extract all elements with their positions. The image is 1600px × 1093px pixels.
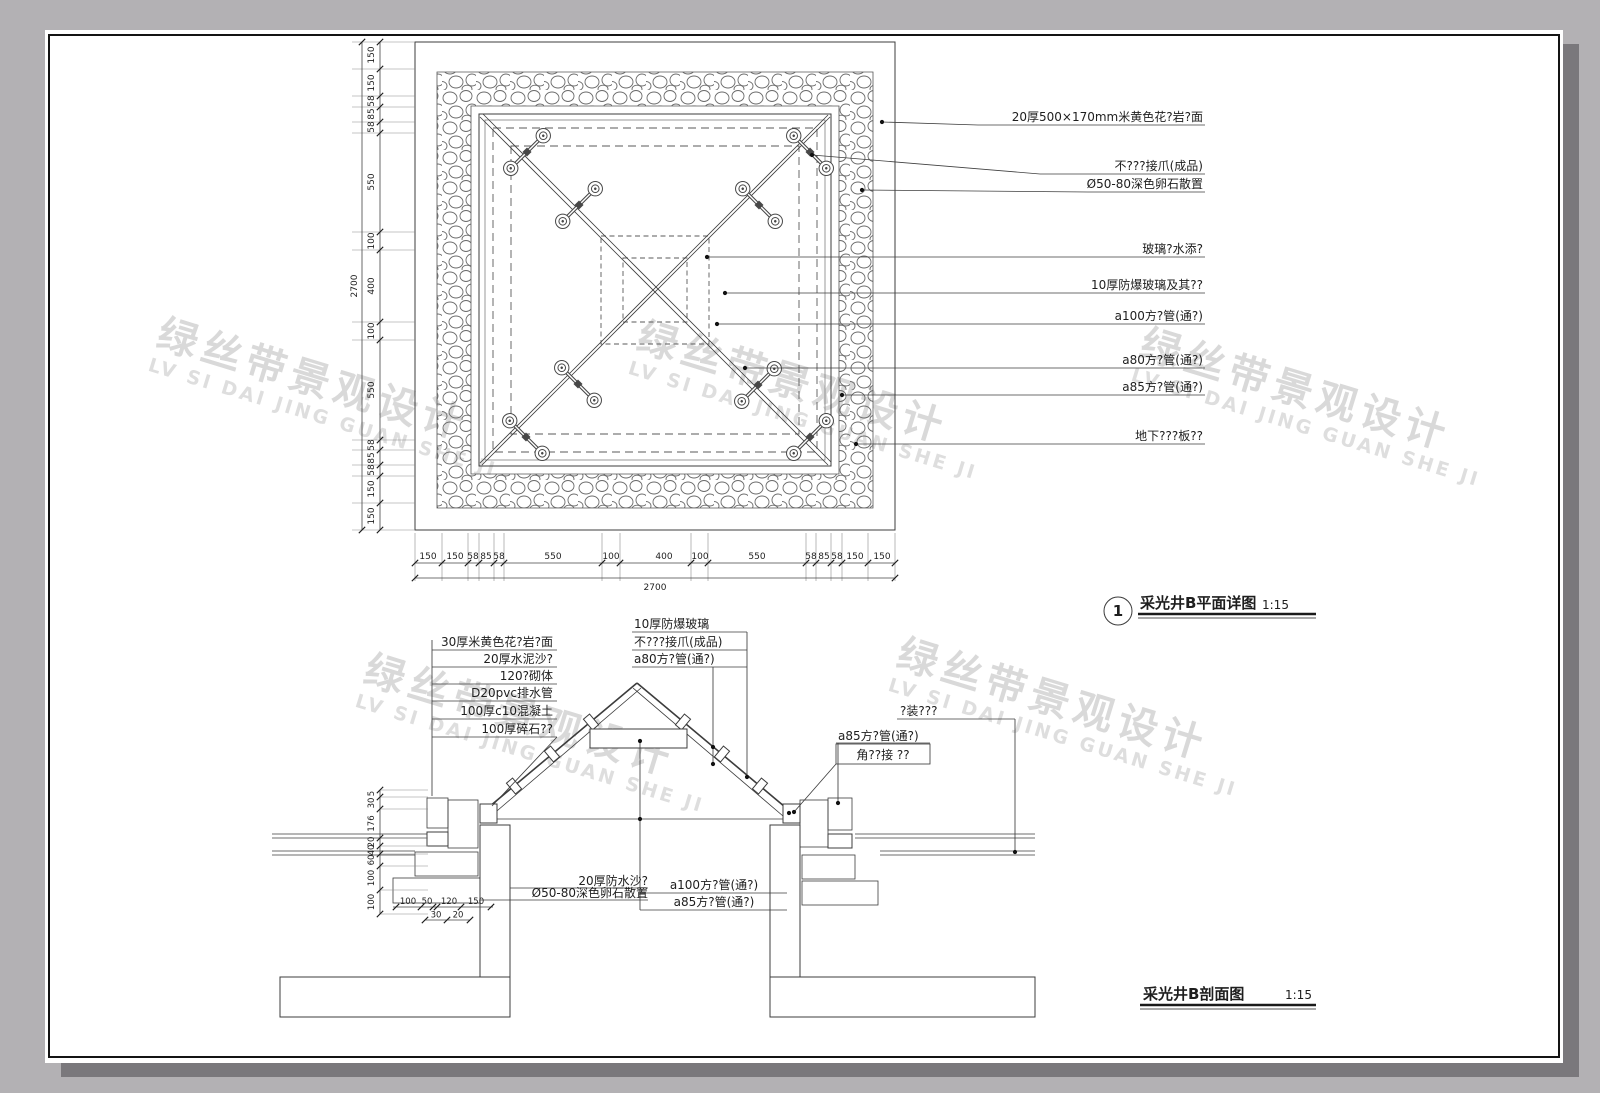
drawing-border bbox=[48, 34, 1560, 1058]
drawing-sheet bbox=[45, 30, 1563, 1063]
